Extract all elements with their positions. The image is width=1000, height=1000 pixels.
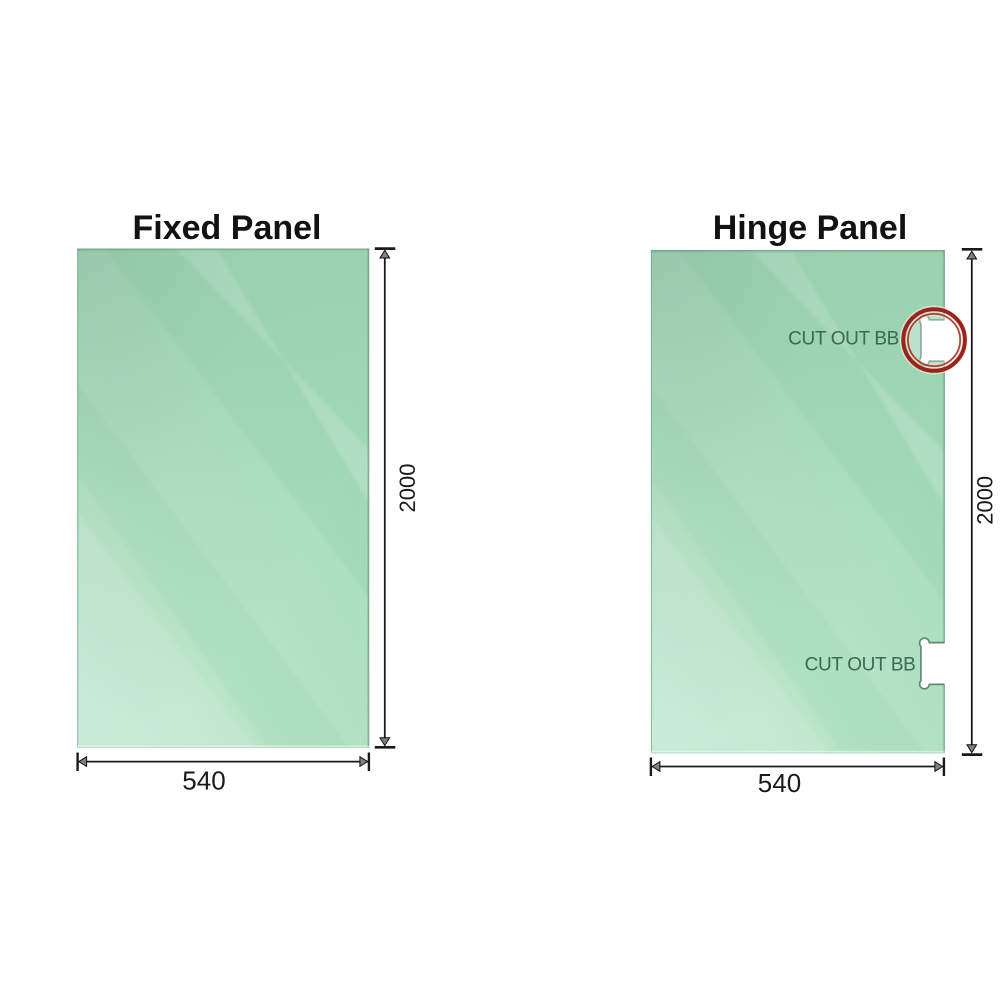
svg-text:CUT OUT BB: CUT OUT BB [788,329,899,350]
svg-text:Hinge Panel: Hinge Panel [713,209,908,247]
svg-text:2000: 2000 [972,476,997,525]
svg-text:540: 540 [182,766,225,796]
svg-text:Fixed Panel: Fixed Panel [133,209,322,247]
svg-text:540: 540 [758,768,801,798]
svg-text:2000: 2000 [395,464,420,513]
svg-text:CUT OUT BB: CUT OUT BB [805,655,916,676]
